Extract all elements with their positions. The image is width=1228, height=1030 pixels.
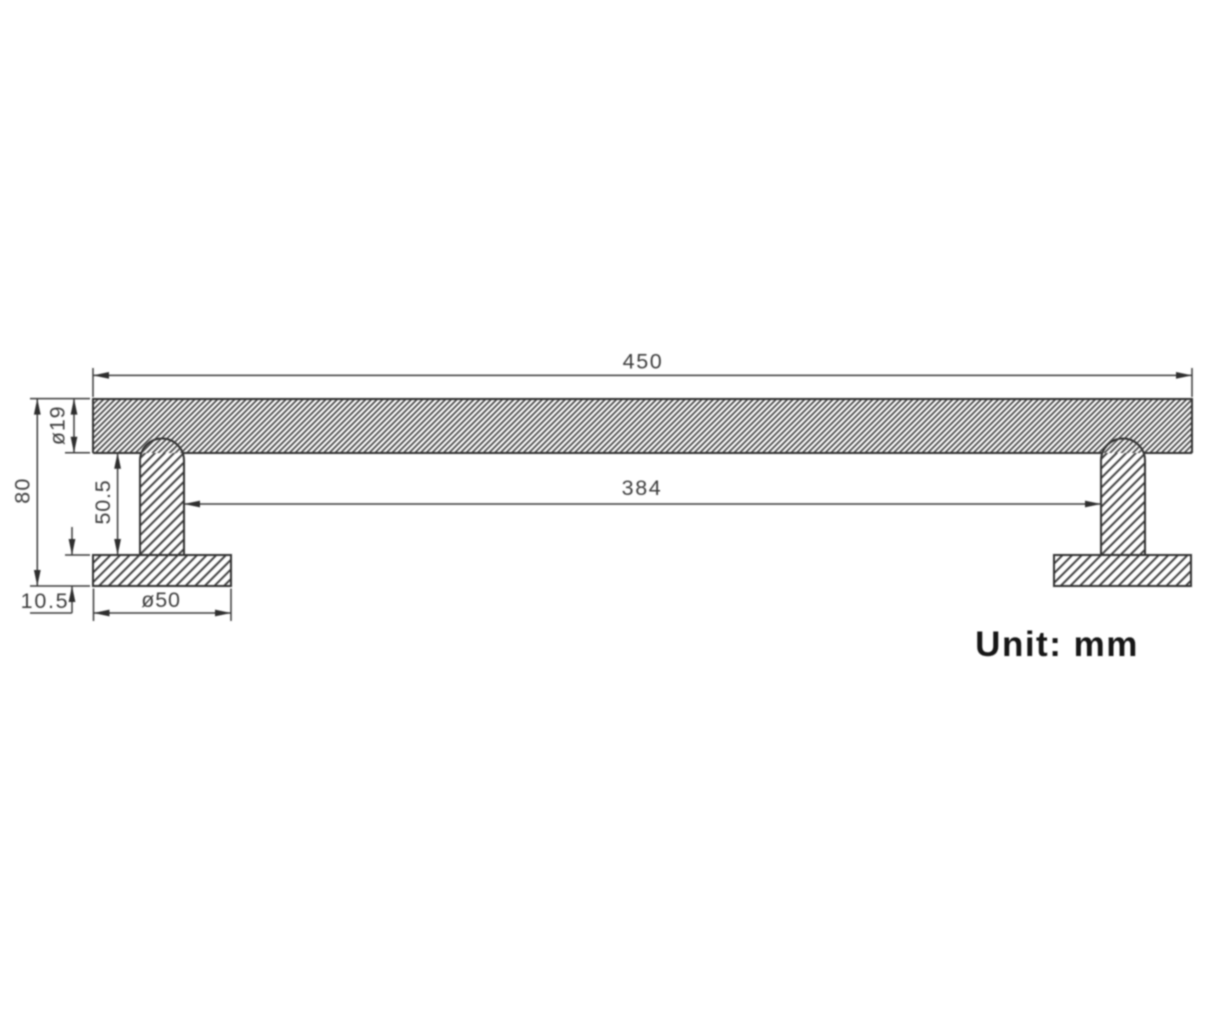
svg-text:450: 450: [623, 350, 664, 374]
svg-text:384: 384: [622, 476, 663, 500]
svg-text:10.5: 10.5: [21, 589, 70, 613]
svg-text:ø19: ø19: [46, 406, 70, 445]
svg-text:50.5: 50.5: [91, 479, 115, 524]
svg-text:80: 80: [11, 477, 35, 503]
svg-text:ø50: ø50: [141, 588, 180, 612]
svg-text:Unit: mm: Unit: mm: [975, 625, 1139, 664]
